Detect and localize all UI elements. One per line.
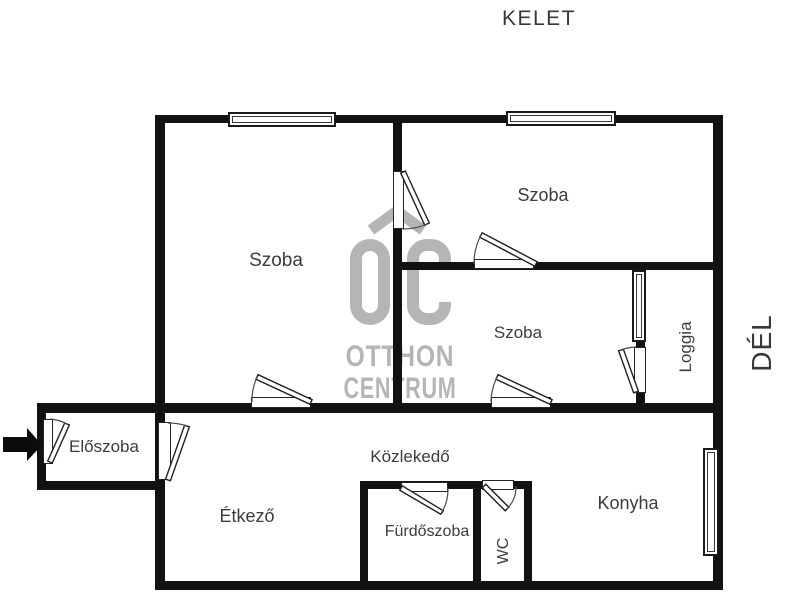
wall-bottom	[155, 581, 723, 590]
room-label-furdoszoba: Fürdőszoba	[357, 521, 497, 543]
window-szoba-left	[228, 112, 336, 127]
room-label-szoba-top: Szoba	[473, 184, 613, 206]
door-szoba-left-right	[393, 171, 404, 229]
window-konyha	[703, 448, 719, 556]
room-label-etkezo: Étkező	[177, 505, 317, 527]
room-label-szoba-middle: Szoba	[448, 322, 588, 344]
room-label-loggia: Loggia	[675, 277, 697, 417]
window-loggia	[632, 270, 646, 342]
room-label-wc: WC	[493, 481, 515, 598]
watermark-letter-o-icon	[356, 245, 384, 319]
wall-wc-right	[524, 481, 532, 586]
floor-plan: OTTHON CENTRUM	[0, 0, 800, 598]
door-szoba-kozlekedo	[491, 397, 551, 408]
compass-label-east: KELET	[469, 7, 609, 31]
door-szoba-szoba-top	[474, 259, 534, 269]
door-etkezo-szoba	[251, 397, 311, 408]
door-loggia	[634, 347, 646, 393]
room-label-szoba-left: Szoba	[206, 250, 346, 272]
door-leaf	[401, 171, 430, 225]
window-szoba-top	[506, 111, 616, 126]
door-arc	[403, 224, 427, 229]
door-furdoszoba	[401, 482, 448, 492]
room-label-konyha: Konyha	[558, 492, 698, 514]
wall-left	[155, 115, 165, 590]
room-label-eloszoba: Előszoba	[34, 436, 174, 458]
room-label-kozlekedo: Közlekedő	[340, 446, 480, 468]
wall-szoba2-szoba3	[397, 262, 723, 270]
wall-main-horizontal	[37, 403, 723, 413]
wall-eloszoba-bottom	[37, 481, 165, 490]
watermark-letter-c-icon	[413, 245, 445, 319]
compass-label-south: DÉL	[749, 273, 775, 413]
